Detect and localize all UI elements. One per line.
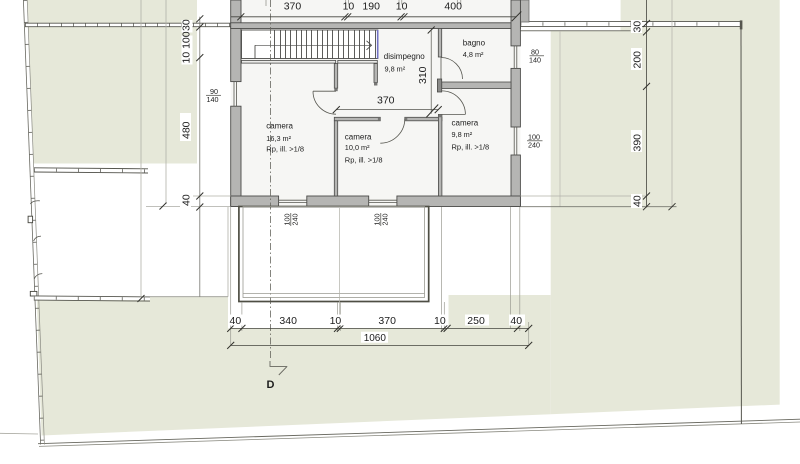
svg-text:16,3 m²: 16,3 m²	[266, 134, 291, 143]
svg-text:9,8 m²: 9,8 m²	[452, 130, 473, 139]
svg-text:10 100: 10 100	[180, 31, 192, 63]
svg-text:bagno: bagno	[463, 38, 486, 47]
svg-text:camera: camera	[452, 118, 479, 127]
svg-text:10: 10	[343, 1, 355, 13]
svg-text:9,8 m²: 9,8 m²	[385, 65, 406, 74]
svg-text:camera: camera	[345, 132, 372, 141]
svg-text:310: 310	[417, 66, 429, 84]
svg-text:370: 370	[378, 315, 396, 327]
svg-text:40: 40	[230, 315, 242, 327]
svg-text:40: 40	[510, 315, 522, 327]
svg-text:340: 340	[279, 315, 297, 327]
svg-text:10: 10	[434, 315, 446, 327]
svg-text:10,0 m²: 10,0 m²	[345, 143, 370, 152]
svg-text:200: 200	[631, 51, 643, 69]
svg-text:D: D	[267, 379, 275, 391]
svg-text:480: 480	[180, 121, 192, 139]
svg-text:240: 240	[291, 214, 300, 226]
svg-text:400: 400	[444, 1, 462, 13]
svg-text:disimpegno: disimpegno	[384, 52, 425, 61]
svg-text:250: 250	[467, 315, 485, 327]
svg-text:Rp, ill. >1/8: Rp, ill. >1/8	[452, 142, 490, 151]
svg-text:370: 370	[377, 94, 395, 106]
svg-text:240: 240	[381, 214, 390, 226]
svg-text:140: 140	[529, 56, 541, 65]
svg-text:390: 390	[631, 134, 643, 152]
svg-text:240: 240	[528, 141, 540, 150]
svg-text:370: 370	[284, 1, 302, 13]
svg-text:4,8 m²: 4,8 m²	[463, 50, 484, 59]
svg-text:10: 10	[330, 315, 342, 327]
svg-text:camera: camera	[266, 122, 293, 131]
svg-text:Rp, ill. >1/8: Rp, ill. >1/8	[345, 155, 383, 164]
svg-text:40: 40	[631, 195, 643, 207]
svg-text:Rp, ill. >1/8: Rp, ill. >1/8	[266, 145, 304, 154]
svg-text:10: 10	[396, 1, 408, 13]
svg-text:40: 40	[180, 194, 192, 206]
svg-text:30: 30	[180, 19, 192, 31]
svg-text:1060: 1060	[364, 333, 387, 344]
svg-text:140: 140	[207, 95, 219, 104]
svg-text:30: 30	[631, 21, 643, 33]
svg-text:190: 190	[362, 1, 380, 13]
